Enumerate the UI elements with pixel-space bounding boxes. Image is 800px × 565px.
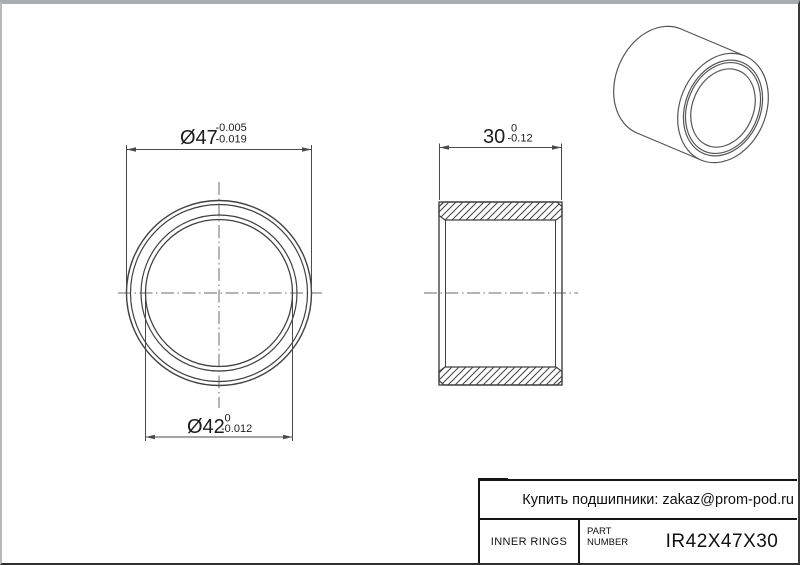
part-number-cell: IR42X47X30	[647, 520, 797, 563]
width-tol-lower: -0.12	[508, 133, 533, 145]
outer-diameter-value: Ø47	[180, 127, 218, 149]
arrowhead-left	[440, 145, 450, 149]
width-value: 30	[483, 126, 505, 148]
category-text: INNER RINGS	[491, 536, 568, 548]
part-number-value: IR42X47X30	[666, 531, 779, 553]
front-view: Ø47 -0.005 -0.019 Ø42 0 -0.012	[118, 122, 322, 441]
bore-diameter-tol-lower: -0.012	[221, 423, 252, 435]
arrowhead-right	[283, 435, 293, 439]
section-view: 30 0 -0.12	[424, 123, 578, 386]
contact-text: Купить подшипники: zakaz@prom-pod.ru	[522, 492, 794, 508]
engineering-drawing-page: Ø47 -0.005 -0.019 Ø42 0 -0.012	[0, 0, 800, 565]
part-label-line2: NUMBER	[587, 538, 647, 549]
width-dimension: 30 0 -0.12	[440, 123, 562, 201]
section-hatch-top	[439, 202, 562, 220]
arrowhead-right	[302, 147, 312, 151]
section-hatch-bottom	[439, 367, 562, 385]
contact-row: Купить подшипники: zakaz@prom-pod.ru	[480, 481, 797, 520]
part-row: INNER RINGS PART NUMBER IR42X47X30	[480, 520, 797, 563]
isometric-view	[597, 12, 784, 177]
part-label-line1: PART	[587, 527, 647, 538]
arrowhead-right	[552, 145, 562, 149]
arrowhead-left	[146, 435, 156, 439]
title-block: Купить подшипники: zakaz@prom-pod.ru INN…	[478, 479, 797, 563]
part-number-label: PART NUMBER	[580, 520, 647, 563]
arrowhead-left	[127, 147, 137, 151]
bore-diameter-value: Ø42	[187, 416, 225, 438]
category-cell: INNER RINGS	[480, 520, 580, 563]
title-block-notch	[478, 478, 508, 481]
outer-diameter-tol-lower: -0.019	[216, 134, 247, 146]
outer-diameter-tol-upper: -0.005	[216, 122, 247, 134]
